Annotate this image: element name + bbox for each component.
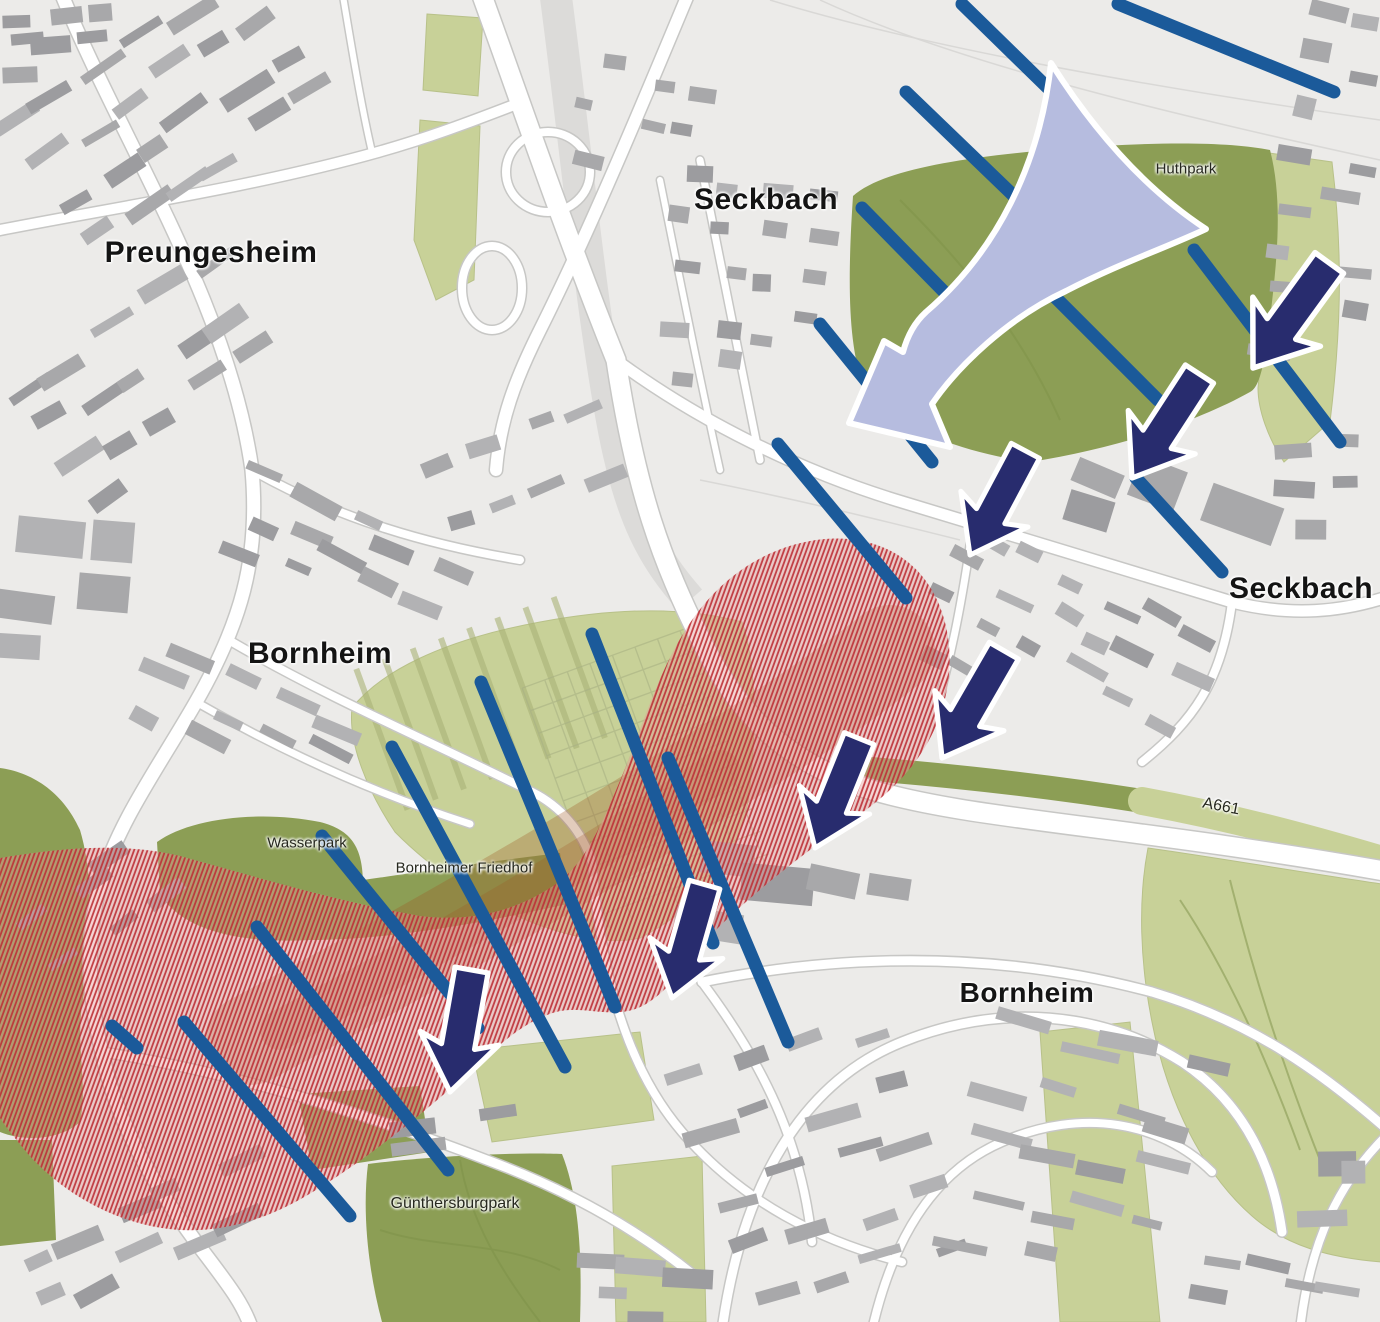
- map-viewport: Preungesheim Seckbach Seckbach Bornheim …: [0, 0, 1380, 1322]
- map-canvas[interactable]: [0, 0, 1380, 1322]
